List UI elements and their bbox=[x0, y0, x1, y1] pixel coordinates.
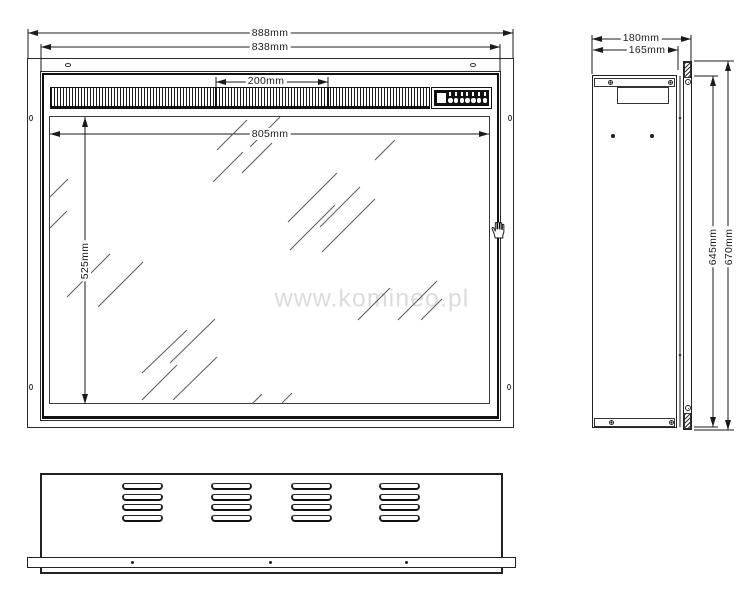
rivet bbox=[609, 420, 614, 425]
screw-slot bbox=[507, 384, 511, 390]
bracket-screw bbox=[685, 79, 691, 85]
mounting-bracket bbox=[684, 413, 691, 429]
screw bbox=[269, 561, 272, 564]
dim-overall-depth: 180mm bbox=[621, 32, 662, 44]
mounting-bracket bbox=[684, 62, 691, 78]
front-view-air-grille bbox=[50, 87, 430, 109]
screw bbox=[131, 561, 134, 564]
rivet bbox=[668, 80, 673, 85]
side-view-top-strip bbox=[594, 78, 675, 87]
mount-hole bbox=[650, 134, 654, 138]
bracket-screw bbox=[685, 405, 691, 411]
control-panel-button-row bbox=[448, 98, 487, 103]
dim-inner-width: 838mm bbox=[250, 41, 291, 53]
dim-body-depth: 165mm bbox=[627, 44, 668, 56]
rivet bbox=[608, 80, 613, 85]
dim-grille-section: 200mm bbox=[246, 75, 287, 87]
vent-louver-group bbox=[291, 483, 332, 522]
technical-drawing-canvas[interactable]: www.komineo.pl bbox=[0, 0, 750, 604]
dim-overall-height: 670mm bbox=[723, 227, 735, 268]
side-view-body bbox=[592, 75, 677, 428]
side-face-dots bbox=[679, 117, 682, 357]
side-view-vent-opening bbox=[617, 87, 669, 104]
rivet bbox=[669, 420, 674, 425]
screw-slot bbox=[508, 115, 512, 121]
side-view-bottom-strip bbox=[594, 418, 675, 427]
hand-cursor-icon bbox=[491, 221, 506, 239]
mount-hole bbox=[611, 134, 615, 138]
front-view-glass-panel bbox=[49, 116, 490, 404]
screw-slot bbox=[65, 63, 71, 67]
dim-glass-height: 525mm bbox=[79, 241, 91, 282]
vent-louver-group bbox=[211, 483, 252, 522]
grille-divider bbox=[327, 87, 329, 108]
side-view-front-flange bbox=[683, 61, 692, 430]
dim-glass-width: 805mm bbox=[250, 128, 291, 140]
vent-louver-group bbox=[122, 483, 163, 522]
screw-slot bbox=[29, 115, 33, 121]
vent-louver-group bbox=[379, 483, 420, 522]
control-panel-indicator-row bbox=[449, 92, 486, 96]
screw bbox=[405, 561, 408, 564]
screw-slot bbox=[470, 63, 476, 67]
control-panel-display bbox=[437, 93, 446, 103]
grille-divider bbox=[215, 87, 217, 108]
dim-overall-width: 888mm bbox=[250, 27, 291, 39]
dim-body-height: 645mm bbox=[707, 227, 719, 268]
screw-slot bbox=[29, 384, 33, 390]
